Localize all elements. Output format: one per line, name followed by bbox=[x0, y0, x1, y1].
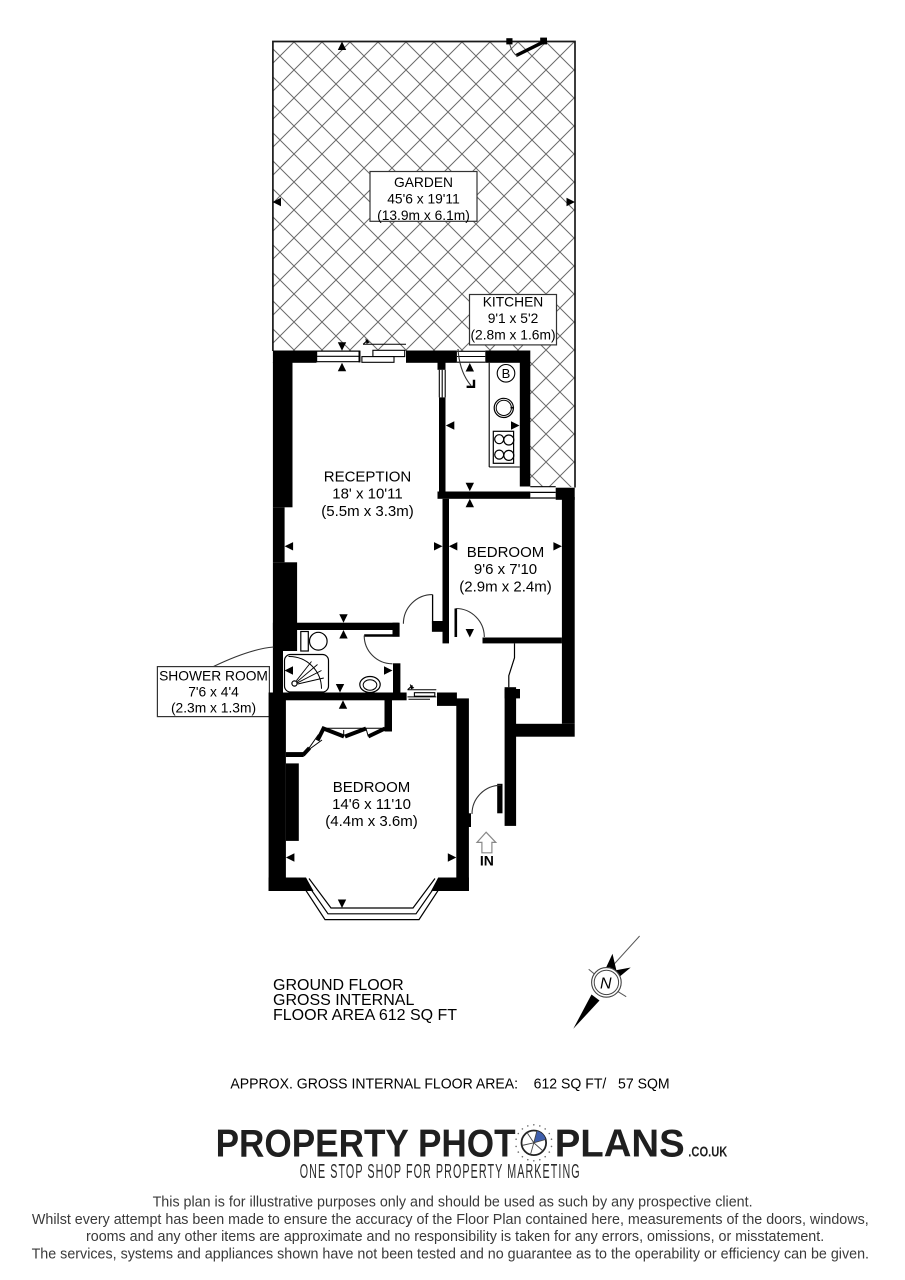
svg-text:7'6 x 4'4: 7'6 x 4'4 bbox=[188, 685, 239, 700]
svg-text:45'6 x 19'11: 45'6 x 19'11 bbox=[387, 191, 460, 206]
svg-text:KITCHEN: KITCHEN bbox=[483, 295, 544, 310]
svg-text:PROPERTY PHOT: PROPERTY PHOT bbox=[216, 1123, 516, 1166]
svg-text:APPROX. GROSS INTERNAL FLOOR A: APPROX. GROSS INTERNAL FLOOR AREA: 612 S… bbox=[230, 1076, 669, 1093]
svg-text:BEDROOM: BEDROOM bbox=[467, 544, 545, 561]
svg-text:9'1 x 5'2: 9'1 x 5'2 bbox=[488, 311, 539, 326]
svg-text:(5.5m x 3.3m): (5.5m x 3.3m) bbox=[321, 503, 414, 520]
svg-text:This plan is for illustrative: This plan is for illustrative purposes o… bbox=[153, 1195, 753, 1211]
svg-text:(13.9m x 6.1m): (13.9m x 6.1m) bbox=[377, 208, 470, 223]
svg-text:(2.9m x 2.4m): (2.9m x 2.4m) bbox=[459, 578, 552, 595]
svg-text:BEDROOM: BEDROOM bbox=[333, 779, 411, 796]
svg-text:IN: IN bbox=[480, 852, 494, 868]
svg-text:PLANS: PLANS bbox=[555, 1123, 685, 1166]
svg-text:GARDEN: GARDEN bbox=[394, 175, 453, 190]
svg-text:N: N bbox=[600, 976, 612, 993]
svg-text:RECEPTION: RECEPTION bbox=[324, 469, 412, 486]
svg-text:The services, systems and appl: The services, systems and appliances sho… bbox=[32, 1246, 869, 1262]
svg-text:(2.8m x 1.6m): (2.8m x 1.6m) bbox=[470, 328, 555, 343]
svg-text:ONE STOP SHOP FOR PROPERTY MAR: ONE STOP SHOP FOR PROPERTY MARKETING bbox=[300, 1161, 581, 1183]
svg-text:Whilst every attempt has been: Whilst every attempt has been made to en… bbox=[32, 1212, 869, 1228]
svg-text:14'6 x 11'10: 14'6 x 11'10 bbox=[332, 796, 411, 813]
svg-text:.CO.UK: .CO.UK bbox=[688, 1144, 727, 1161]
svg-text:rooms and any other items are: rooms and any other items are approximat… bbox=[86, 1229, 824, 1245]
svg-text:(2.3m x 1.3m): (2.3m x 1.3m) bbox=[171, 701, 256, 716]
svg-text:B: B bbox=[502, 366, 511, 381]
svg-text:18' x 10'11: 18' x 10'11 bbox=[332, 486, 403, 503]
svg-text:9'6 x 7'10: 9'6 x 7'10 bbox=[474, 561, 537, 578]
svg-text:SHOWER ROOM: SHOWER ROOM bbox=[159, 669, 268, 684]
svg-text:(4.4m x 3.6m): (4.4m x 3.6m) bbox=[325, 813, 418, 830]
svg-text:FLOOR AREA 612 SQ FT: FLOOR AREA 612 SQ FT bbox=[273, 1007, 457, 1024]
